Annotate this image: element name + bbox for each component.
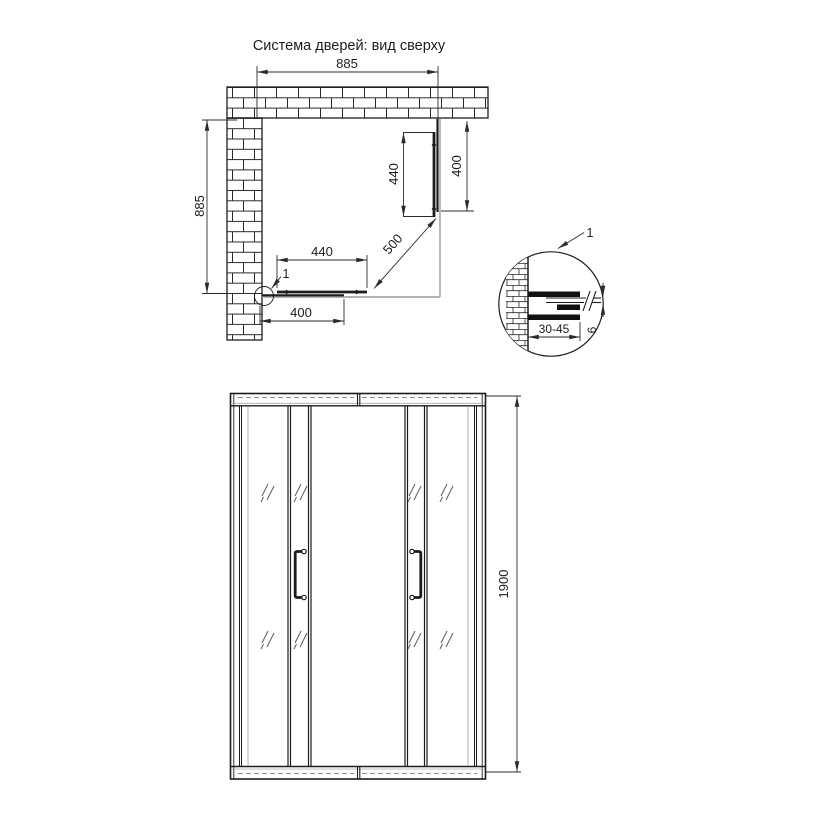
dim-door-right (403, 133, 433, 217)
detail-ref-label: 1 (283, 267, 290, 281)
dim-label-440-right: 440 (386, 163, 401, 185)
dim-label-1900: 1900 (496, 570, 511, 599)
door-handle-left (295, 549, 306, 599)
detail-leader (558, 233, 584, 249)
dim-label-885-top: 885 (336, 56, 358, 71)
detail-wall (506, 250, 528, 360)
detail-ref-label-2: 1 (587, 226, 594, 240)
technical-drawing-page: Система дверей: вид сверху (0, 0, 813, 813)
detail-view: 30-45 6 1 (499, 226, 603, 360)
dim-door-bottom (277, 255, 367, 288)
dim-label-400-right: 400 (449, 155, 464, 177)
dim-label-440-bottom: 440 (311, 244, 333, 259)
dim-label-30-45: 30-45 (539, 322, 570, 336)
bottom-rail (231, 767, 485, 780)
wall-profile-right (468, 406, 477, 766)
roller-mark (284, 290, 289, 295)
wall-left (227, 118, 262, 340)
wall-top (227, 87, 488, 118)
dim-label-400-bottom: 400 (290, 305, 312, 320)
dim-label-6: 6 (585, 326, 599, 333)
sliding-door-left-front (288, 406, 311, 766)
dim-label-500-diagonal: 500 (380, 231, 406, 257)
dim-diagonal-opening (374, 219, 436, 289)
plan-view: Система дверей: вид сверху (192, 38, 488, 340)
dim-label-885-left: 885 (192, 195, 207, 217)
top-rail (231, 394, 485, 407)
sliding-door-right-front (405, 406, 427, 766)
sliding-door-right (432, 132, 437, 217)
frame-outline (231, 394, 486, 780)
roller-mark (354, 290, 359, 295)
door-handle-right (410, 549, 421, 599)
shower-door-drawing: Система дверей: вид сверху (0, 0, 813, 813)
roller-mark (432, 206, 437, 211)
drawing-title: Система дверей: вид сверху (253, 38, 446, 54)
sliding-door-bottom (277, 290, 367, 295)
front-view: 1900 (231, 394, 522, 780)
roller-mark (432, 142, 437, 147)
wall-profile-left (240, 406, 249, 766)
